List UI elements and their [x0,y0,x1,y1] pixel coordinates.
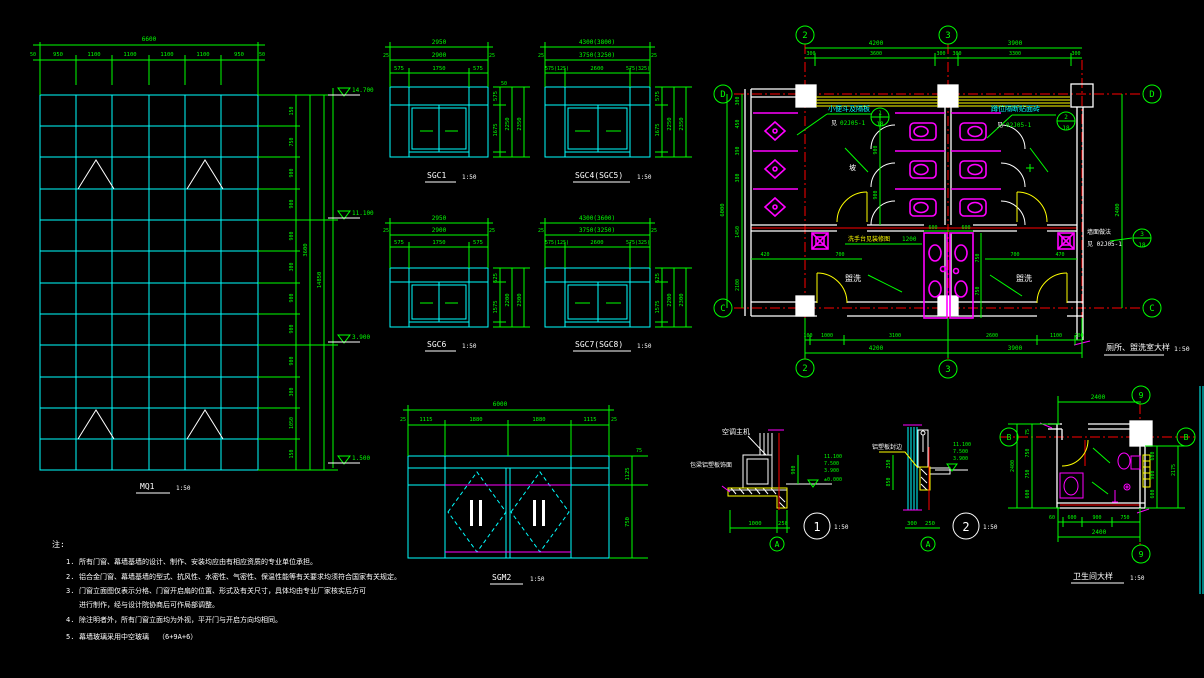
sgm2-door-swing-diamonds [448,472,569,552]
dim: 2250 [505,117,511,130]
dim: 850 [886,477,892,486]
sgc6-title: SGC6 [427,340,446,349]
dim: 300 [936,51,945,57]
plan-fixtures [753,113,1074,318]
dim: 575(125) [545,66,569,72]
sgc1-elevation: 2950 25 25 2900 575 1750 575 50 575 1675… [383,39,530,182]
dim: 250 [886,459,892,468]
wall-finish-ref: 见 02J05-1 [1087,241,1122,248]
sgm2-door-rails [445,485,571,552]
dim: 200 [1074,333,1083,339]
plan-room-doors [817,192,1067,303]
ref-see: 见 [831,120,837,127]
det2-glazing-lines [908,427,917,510]
ref-see: 见 [997,122,1003,129]
dim: 75 [1025,429,1031,435]
notes-head: 注: [52,539,65,549]
dim: 300 [952,51,961,57]
dim: 575 [493,91,499,101]
mq1-opening-triangles [78,160,223,439]
urinal-partition-label: 小便斗及隔板 [828,104,870,113]
dim: 390 [735,146,741,155]
sgm2-scale: 1:50 [530,576,545,583]
mq1-vdim: 900 [289,293,295,302]
axis-bubble-a: A [775,540,780,549]
sgm2-door-handles [470,500,545,526]
wc-slope-lines [1092,448,1110,494]
wc-walls [1048,421,1152,508]
detail-bubble-num: 2 [1064,114,1068,121]
det2-number: 2 [962,520,969,534]
axis-bubble-b: B [1007,433,1012,442]
det2-label: 铝塑板封边 [872,443,902,451]
dim: 1100 [1050,333,1062,339]
plan-axis-bubbles [714,26,1161,378]
axis-bubble-9: 9 [1139,550,1144,559]
mq1-level: 14.700 [352,87,374,94]
det2-dims [893,455,957,551]
slope-char: 坡 [849,163,856,172]
dim: 625 [655,273,661,283]
sgc45-frame [545,87,650,157]
sgc78-title: SGC7(SGC8) [575,340,623,349]
stall-partition-label: 蹲位隔断贴面砖 [991,104,1040,113]
axis-bubble-9: 9 [1139,391,1144,400]
dim: 25 [400,417,406,423]
axis-bubble-2: 2 [802,364,807,374]
dim: 1000 [821,333,833,339]
mq1-vdim: 900 [289,231,295,240]
dim: 25 [489,53,495,59]
axis-bubble-c: C [720,304,725,314]
dim: 2400 [1092,529,1107,536]
dim: 1200 [902,236,917,243]
dim: 380 [735,173,741,182]
sgc45-elevation: 4300(3800) 25 25 3750(3250) 575(125) 260… [538,39,692,182]
mq1-vtotal: 14850 [317,272,323,289]
dim: 2950 [432,215,447,222]
det2-scale: 1:50 [983,524,998,531]
dim: 300 [735,96,741,105]
sgc45-dims [540,42,692,157]
mq1-scale: 1:50 [176,485,191,492]
dim: 575 [473,240,483,246]
basin-note: 洗手台见装修图 [848,235,890,243]
dim: 2900 [432,52,447,59]
dim: 4200 [869,345,884,352]
sgc78-elevation: 4300(3600) 25 25 3750(3250) 575(125) 260… [538,215,692,351]
sgm2-title: SGM2 [492,573,511,582]
dim: 25 [383,53,389,59]
detail-bubble-sheet: 18 [1138,242,1146,249]
dim: 1000 [748,521,761,527]
note-text: 幕墙玻璃采用中空玻璃 [79,632,149,641]
level: 7.500 [824,461,839,467]
dim: 25 [538,53,544,59]
dim: 750 [1025,469,1031,478]
detail-2: 铝塑板封边 11.100 7.500 3.900 250 850 300 250… [872,425,998,551]
dim: 3300 [1009,51,1021,57]
dim: 4300(3600) [579,215,615,222]
dim: 1880 [469,417,482,423]
dim: 6000 [493,401,508,408]
mq1-dim-seg: 1100 [160,52,173,58]
mq1-level: 3.900 [352,334,370,341]
level: 3.900 [824,468,839,474]
dim: 100 [803,333,812,339]
note-num: 5. [66,633,74,641]
dim: 575(125) [545,240,569,246]
sgc78-frame [545,268,650,327]
mq1-vdim: 300 [289,262,295,271]
dim: 2400 [1010,460,1016,472]
wc-door [1062,440,1088,466]
wc-shaft [1143,455,1150,487]
dim: 3900 [1008,345,1023,352]
sgm2-dims [403,405,648,558]
axis-bubble-d: D [1149,90,1154,100]
level: 3.900 [953,456,968,462]
dim: 600 [1150,489,1156,498]
mq1-vdim: 750 [289,137,295,146]
sgc6-scale: 1:50 [462,343,477,350]
level: 11.100 [824,454,842,460]
dim: 2950 [432,39,447,46]
dim: 1750 [432,66,445,72]
mq1-vtotal: 3600 [303,243,309,256]
dim: 2200 [667,293,673,306]
mq1-elevation: 6600 50 50 950 1100 1100 1100 1100 950 1… [30,36,374,493]
mq1-dim-end: 50 [259,52,265,58]
det1-drawing [728,433,832,508]
mq1-vdim: 150 [289,106,295,115]
detail-1: 空调主机 包梁铝塑板饰面 11.100 7.500 3.900 ±0.000 9… [690,427,849,551]
dim: 2600 [986,333,998,339]
wc-scale: 1:50 [1130,575,1145,582]
axis-bubble-a: A [926,540,931,549]
dim: 750 [1120,515,1129,521]
dim: 600 [1067,515,1076,521]
note-num: 4. [66,616,74,624]
dim: 625 [493,273,499,283]
dim: 600 [1025,489,1031,498]
dim: 2350 [517,117,523,130]
dim: 2175 [1171,464,1177,476]
dim: 900 [1092,515,1101,521]
dim: 1115 [419,417,432,423]
dim: 2350 [679,117,685,130]
dim: 300 [1071,51,1080,57]
mq1-vdim: 1050 [289,417,295,429]
mq1-dim-total: 6600 [142,36,157,43]
room-label-right: 盥洗 [1016,273,1032,283]
mq1-vdim: 300 [289,387,295,396]
mq1-dim-seg: 1100 [123,52,136,58]
axis-bubble-c: C [1149,304,1154,314]
detail-bubble-sheet: 18 [1062,125,1070,132]
dim: 25 [538,228,544,234]
cad-drawing: 6600 50 50 950 1100 1100 1100 1100 950 1… [0,0,1204,678]
mq1-level: 1.500 [352,455,370,462]
det1-scale: 1:50 [834,524,849,531]
sgc1-frame [390,87,488,157]
dim: 700 [1010,252,1019,258]
det1-number: 1 [813,520,820,534]
dim: 2600 [590,240,603,246]
dim: 2100 [735,279,741,291]
dim: 300 [806,51,815,57]
dim: 900 [1150,470,1156,479]
detail-ref: 02J05-1 [840,120,866,127]
sgc78-scale: 1:50 [637,343,652,350]
mq1-vdim: 900 [289,168,295,177]
mq1-dim-seg: 1100 [87,52,100,58]
bathroom-detail: 9 9 B B 2400 75 750 750 600 2400 600 900… [1000,386,1196,583]
detail-bubble-num: 1 [878,110,882,117]
general-notes: 注: 1. 所有门窗、幕墙基墙的设计、制作、安装均应由有相应资质的专业单位承担。… [52,539,401,641]
mq1-vdim: 150 [289,449,295,458]
note-text: 铝合金门窗、幕墙基墙的型式、抗风性、水密性、气密性、保温性能等有关要求均须符合国… [79,572,401,581]
dim: 4300(3800) [579,39,615,46]
dim: 1115 [583,417,596,423]
dim: 750 [975,286,981,295]
note-num: 1. [66,558,74,566]
det1-break-ticks [722,430,784,492]
dim: 575 [473,66,483,72]
sgc78-dims [540,218,692,327]
dim: 60 [1049,515,1055,521]
dim: 50 [501,81,507,87]
room-label-left: 盥洗 [845,273,861,283]
axis-bubble-3: 3 [945,365,950,375]
note-text: 进行制作，经与设计院协商后可作局部调整。 [79,600,219,609]
wc-title: 卫生间大样 [1073,571,1113,581]
sgc6-frame [390,268,488,327]
plan-title: 厕所、盥洗室大样 [1106,342,1170,352]
sgc1-title: SGC1 [427,171,446,180]
dim: 450 [735,119,741,128]
dim: 1675 [493,123,499,136]
mq1-dim-end: 50 [30,52,36,58]
dim: 25 [383,228,389,234]
sgc45-scale: 1:50 [637,174,652,181]
detail-ref: 02J05-1 [1006,122,1032,129]
dim: 1880 [532,417,545,423]
note-num: 3. [66,587,74,595]
dim: 750 [975,253,981,262]
dim: 4200 [869,40,884,47]
note-num: 2. [66,573,74,581]
dim: 2600 [590,66,603,72]
level: 11.100 [953,442,971,448]
mq1-dim-seg: 1100 [196,52,209,58]
dim: 25 [651,228,657,234]
dim: 900 [873,145,879,154]
det1-label2: 包梁铝塑板饰面 [690,461,732,469]
dim: 575 [655,91,661,101]
dim: 600 [928,225,937,231]
dim: 575(325) [626,66,650,72]
note-text: 门窗立面图仅表示分格、门窗开启扇的位置、形式及有关尺寸，具体均由专业厂家核实后方… [79,586,366,595]
drawing-border-right [1200,386,1203,594]
dim: 6000 [720,203,726,216]
dim: 575 [394,66,404,72]
dim: 2400 [1115,203,1121,216]
dim: 250 [925,521,935,527]
dim: 2200 [505,293,511,306]
axis-bubble-2: 2 [802,31,807,41]
sgc1-scale: 1:50 [462,174,477,181]
dim: 1675 [655,123,661,136]
dim: 3900 [1008,40,1023,47]
wall-finish-note: 墙面做法 [1087,228,1111,236]
dim: 75 [636,448,642,454]
note-text: 所有门窗、幕墙基墙的设计、制作、安装均应由有相应资质的专业单位承担。 [79,557,317,566]
sgm2-frame [408,456,609,558]
sgc1-dims [385,42,530,157]
dim: 750 [625,517,631,527]
dim: 575(325) [626,240,650,246]
det1-label: 空调主机 [722,427,750,436]
plan-scale: 1:50 [1174,345,1190,353]
detail-bubble-num: 3 [1140,231,1144,238]
toilet-plan: 2 3 D D C C 2 3 4200 3900 300 3600 300 3… [714,26,1204,378]
axis-bubble-d: D [720,90,725,100]
dim: 900 [791,465,797,474]
dim: 1125 [625,467,631,480]
axis-bubble-3: 3 [945,31,950,41]
dim: 420 [760,252,769,258]
sgm2-elevation: 6000 25 25 1115 1880 1880 1115 75 1125 7… [400,401,648,584]
dim: 600 [961,225,970,231]
dim: 300 [907,521,917,527]
mq1-vdim: 900 [289,324,295,333]
note-text: 除注明者外，所有门窗立面均为外视，平开门与开启方向均相同。 [79,615,282,624]
cad-canvas: 6600 50 50 950 1100 1100 1100 1100 950 1… [0,0,1204,678]
dim: 1750 [432,240,445,246]
dim: 25 [651,53,657,59]
sgc45-title: SGC4(SGC5) [575,171,623,180]
dim: 3750(3250) [579,52,615,59]
dim: 2300 [517,293,523,306]
dim: 2900 [432,227,447,234]
dim: 2300 [679,293,685,306]
dim: 575 [394,240,404,246]
dim: 250 [778,521,788,527]
dim: 2400 [1091,394,1106,401]
dim: 25 [489,228,495,234]
dim: 470 [1055,252,1064,258]
dim: 25 [611,417,617,423]
mq1-dim-seg: 950 [234,52,244,58]
dim: 750 [1025,448,1031,457]
mq1-vdim: 900 [289,356,295,365]
detail-bubble-sheet: 18 [876,121,884,128]
level: 7.500 [953,449,968,455]
dim: 900 [873,190,879,199]
dim: 600 [1150,451,1156,460]
mq1-vdim: 900 [289,199,295,208]
dim: 700 [835,252,844,258]
axis-bubble-b: B [1184,433,1189,442]
dim: 3600 [870,51,882,57]
mq1-grid [40,95,258,470]
dim: 1575 [655,300,661,313]
mq1-level: 11.100 [352,210,374,217]
dim: 3100 [889,333,901,339]
note-glass-spec: （6+9A+6） [158,633,197,641]
sgc6-elevation: 2950 25 25 2900 575 1750 575 625 1575 22… [383,215,530,351]
dim: 2250 [667,117,673,130]
mq1-dim-seg: 950 [53,52,63,58]
mq1-title: MQ1 [140,482,155,491]
sgc6-dims [385,218,530,327]
dim: 1575 [493,300,499,313]
dim: 1450 [735,226,741,238]
dim: 3750(3250) [579,227,615,234]
level: ±0.000 [824,477,842,483]
